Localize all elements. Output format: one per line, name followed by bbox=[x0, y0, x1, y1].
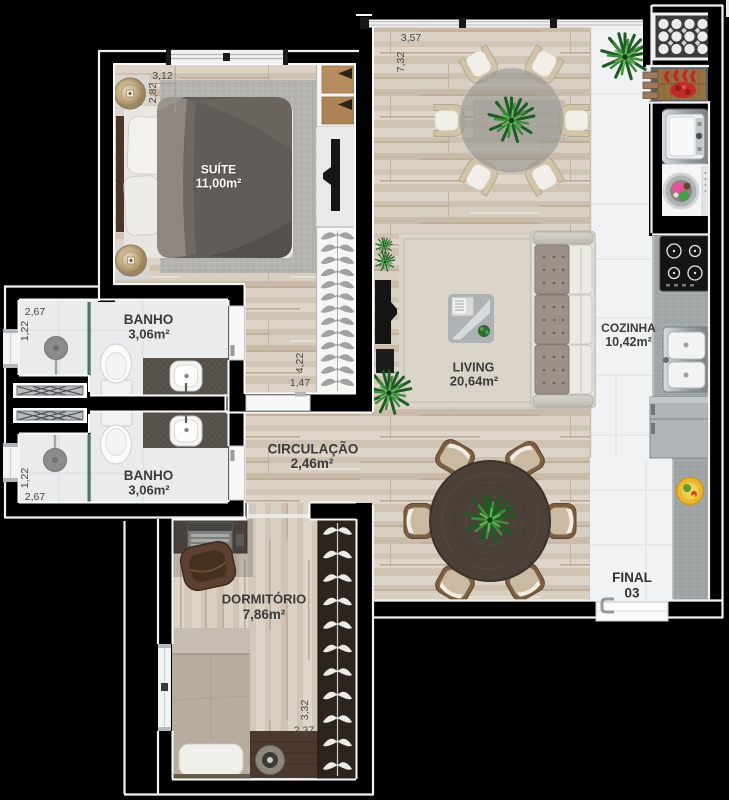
svg-text:20,64m²: 20,64m² bbox=[450, 374, 499, 389]
svg-text:LIVING: LIVING bbox=[453, 361, 495, 375]
svg-text:1,22: 1,22 bbox=[19, 321, 31, 342]
svg-text:3,06m²: 3,06m² bbox=[128, 483, 170, 498]
svg-text:7,86m²: 7,86m² bbox=[243, 607, 286, 622]
svg-text:7,32: 7,32 bbox=[395, 52, 407, 73]
svg-text:2,46m²: 2,46m² bbox=[291, 456, 334, 471]
svg-text:10,42m²: 10,42m² bbox=[605, 335, 652, 349]
svg-text:11,00m²: 11,00m² bbox=[196, 177, 242, 191]
svg-text:1,47: 1,47 bbox=[290, 377, 311, 389]
svg-text:2,67: 2,67 bbox=[25, 306, 46, 318]
svg-text:CIRCULAÇÃO: CIRCULAÇÃO bbox=[268, 442, 359, 457]
svg-text:BANHO: BANHO bbox=[124, 312, 174, 327]
svg-text:BANHO: BANHO bbox=[124, 468, 174, 483]
svg-text:DORMITÓRIO: DORMITÓRIO bbox=[222, 592, 307, 607]
svg-text:1,22: 1,22 bbox=[19, 468, 31, 489]
svg-text:3,12: 3,12 bbox=[152, 70, 173, 82]
svg-text:3,57: 3,57 bbox=[401, 32, 422, 44]
svg-text:03: 03 bbox=[624, 586, 640, 601]
svg-text:2,37: 2,37 bbox=[294, 725, 315, 737]
svg-text:2,67: 2,67 bbox=[25, 491, 46, 503]
svg-text:SUÍTE: SUÍTE bbox=[201, 162, 236, 177]
svg-text:COZINHA: COZINHA bbox=[601, 321, 656, 335]
svg-text:3,06m²: 3,06m² bbox=[128, 327, 170, 342]
svg-text:3,32: 3,32 bbox=[299, 700, 311, 721]
svg-text:2,82: 2,82 bbox=[147, 83, 159, 104]
svg-text:FINAL: FINAL bbox=[612, 570, 652, 585]
svg-text:4,22: 4,22 bbox=[294, 353, 306, 374]
